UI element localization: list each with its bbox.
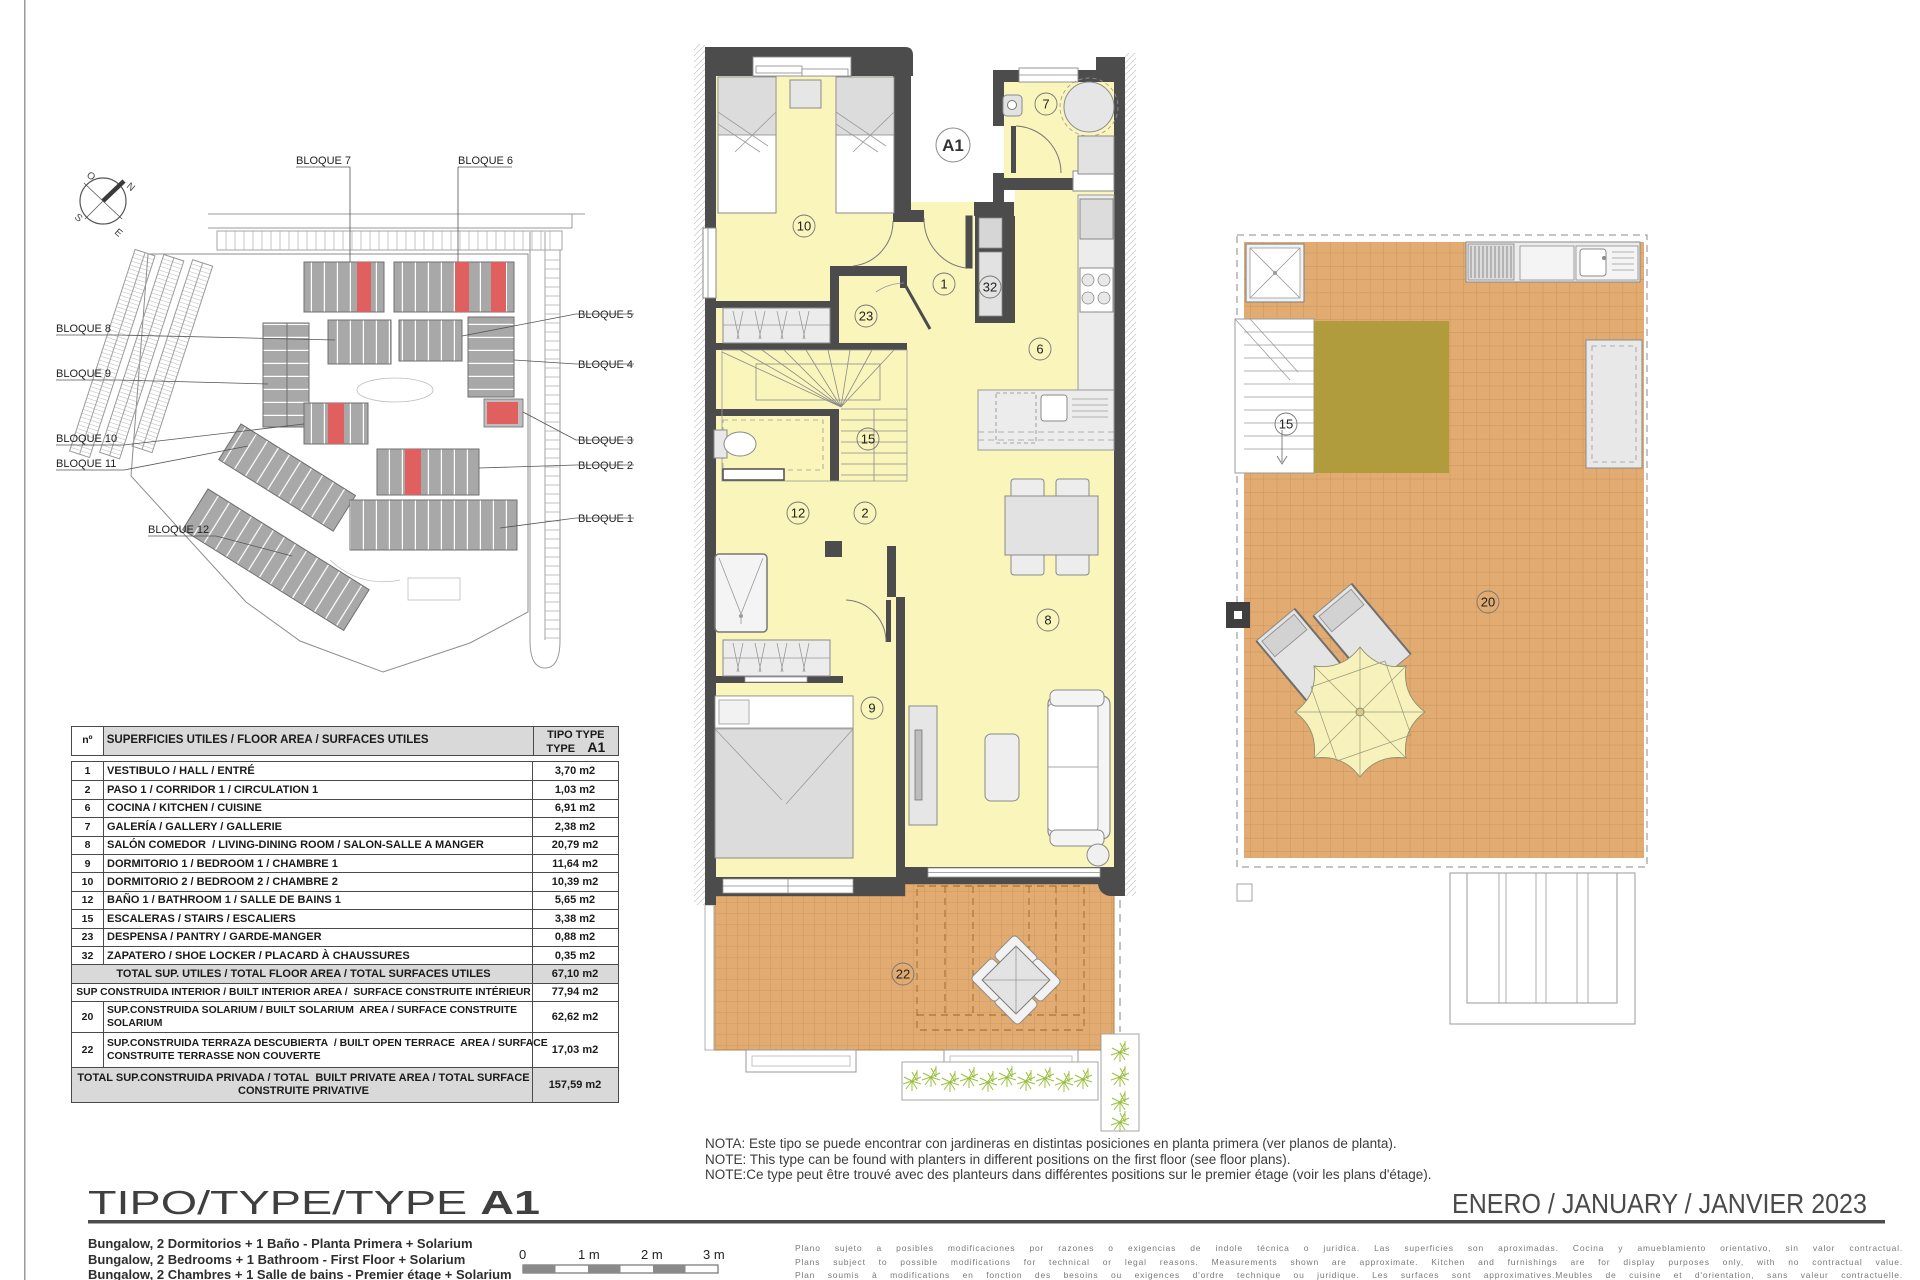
svg-text:32: 32 <box>983 280 997 295</box>
svg-text:2 m: 2 m <box>641 1247 663 1262</box>
svg-text:BLOQUE 8: BLOQUE 8 <box>56 323 111 335</box>
svg-text:BLOQUE 10: BLOQUE 10 <box>56 433 117 445</box>
svg-text:23: 23 <box>859 309 873 324</box>
svg-text:BLOQUE 4: BLOQUE 4 <box>578 359 633 371</box>
svg-text:BLOQUE 9: BLOQUE 9 <box>56 368 111 380</box>
svg-text:7: 7 <box>1042 97 1049 112</box>
svg-text:BLOQUE 12: BLOQUE 12 <box>148 524 209 536</box>
svg-text:TIPO/TYPE/TYPE A1: TIPO/TYPE/TYPE A1 <box>88 1184 540 1222</box>
svg-text:2: 2 <box>861 506 868 521</box>
svg-text:BLOQUE 6: BLOQUE 6 <box>458 155 513 167</box>
svg-text:8: 8 <box>1044 613 1051 628</box>
svg-text:15: 15 <box>861 432 875 447</box>
svg-text:12: 12 <box>791 506 805 521</box>
svg-text:3 m: 3 m <box>703 1247 725 1262</box>
svg-text:20: 20 <box>1481 595 1495 610</box>
svg-text:BLOQUE 3: BLOQUE 3 <box>578 435 633 447</box>
svg-text:BLOQUE 2: BLOQUE 2 <box>578 460 633 472</box>
svg-text:N: N <box>124 181 137 194</box>
svg-text:22: 22 <box>896 967 910 982</box>
svg-text:E: E <box>112 227 124 240</box>
svg-text:O: O <box>84 170 97 184</box>
svg-text:1: 1 <box>940 277 947 292</box>
svg-text:10: 10 <box>797 219 811 234</box>
svg-text:9: 9 <box>868 701 875 716</box>
svg-text:BLOQUE 1: BLOQUE 1 <box>578 513 633 525</box>
svg-text:15: 15 <box>1279 417 1293 432</box>
svg-text:S: S <box>72 212 84 225</box>
svg-text:BLOQUE 5: BLOQUE 5 <box>578 309 633 321</box>
svg-text:ENERO / JANUARY / JANVIER 2023: ENERO / JANUARY / JANVIER 2023 <box>1452 1188 1867 1220</box>
svg-text:A1: A1 <box>942 136 964 155</box>
svg-text:BLOQUE 7: BLOQUE 7 <box>296 155 351 167</box>
svg-text:6: 6 <box>1036 342 1043 357</box>
svg-text:BLOQUE 11: BLOQUE 11 <box>56 458 116 470</box>
